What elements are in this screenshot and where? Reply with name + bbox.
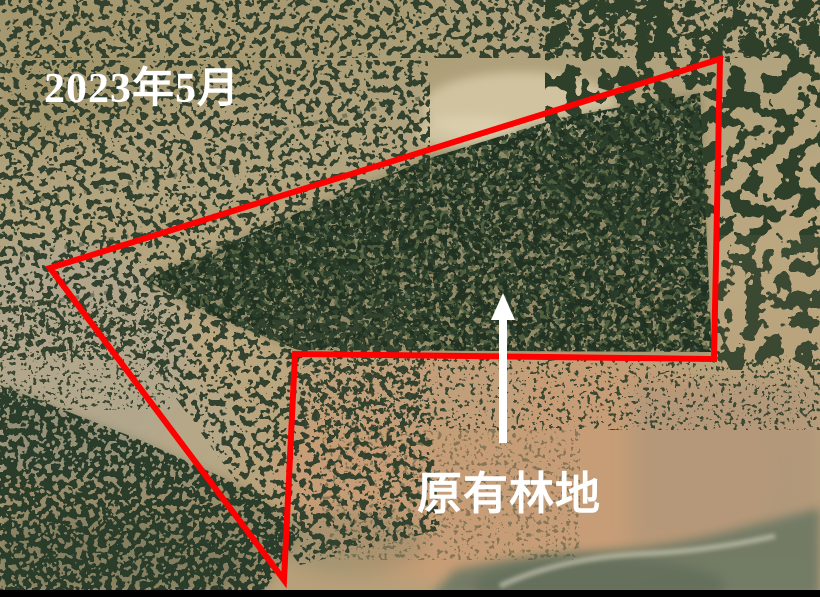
bottom-letterbox-bar (0, 590, 820, 597)
annotated-satellite-image: 2023年5月 原有林地 (0, 0, 820, 597)
arrow-head (491, 293, 515, 320)
region-outline (50, 59, 720, 580)
area-label: 原有林地 (417, 472, 601, 517)
date-label: 2023年5月 (44, 68, 240, 110)
